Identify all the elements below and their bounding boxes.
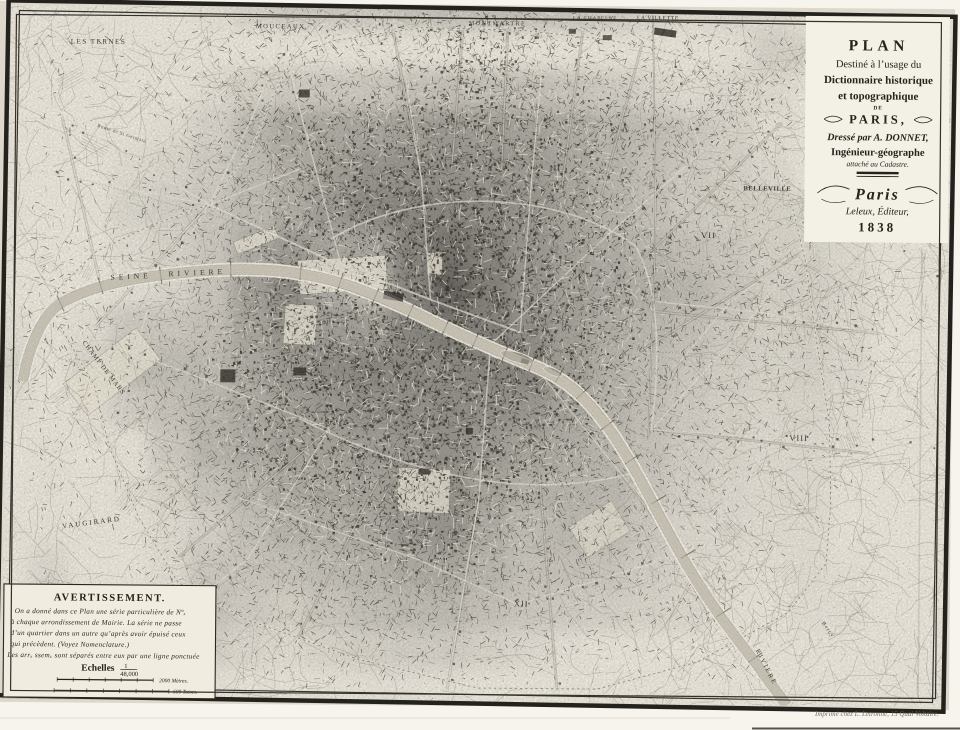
svg-text:III: III <box>550 163 562 173</box>
svg-text:XI: XI <box>397 491 408 501</box>
svg-text:1: 1 <box>124 663 127 670</box>
svg-text:DE: DE <box>873 105 883 111</box>
svg-text:Dressé par A. DONNET,: Dressé par A. DONNET, <box>826 132 928 144</box>
svg-text:MOUCEAUX: MOUCEAUX <box>256 23 306 30</box>
svg-text:Destiné à l’usage du: Destiné à l’usage du <box>836 59 922 71</box>
svg-text:qui précèdent. (Voyez Nomencla: qui précèdent. (Voyez Nomenclature.) <box>10 640 129 649</box>
svg-text:à chaque arrondissement de Mai: à chaque arrondissement de Mairie. La sé… <box>11 618 183 627</box>
svg-text:48,000: 48,000 <box>120 671 138 678</box>
svg-text:XII: XII <box>514 598 529 608</box>
svg-text:PARIS,: PARIS, <box>849 112 907 127</box>
svg-text:PLAN: PLAN <box>849 37 909 55</box>
svg-text:Paris: Paris <box>854 186 900 203</box>
svg-text:On a donné dans ce Plan une sé: On a donné dans ce Plan une série partic… <box>15 607 186 616</box>
svg-text:d’un quartier dans un autre qu: d’un quartier dans un autre qu’après avo… <box>11 629 187 639</box>
svg-text:LES TERNES: LES TERNES <box>71 37 127 45</box>
svg-text:2000 Mètres.: 2000 Mètres. <box>159 678 188 684</box>
svg-text:Dictionnaire historique: Dictionnaire historique <box>824 74 933 87</box>
svg-text:Ingénieur-géographe: Ingénieur-géographe <box>831 147 925 159</box>
svg-text:Les arrₓ ssemₓ sont séparés en: Les arrₓ ssemₓ sont séparés entre eux pa… <box>6 651 200 661</box>
svg-text:MONTMARTRE: MONTMARTRE <box>469 21 526 27</box>
svg-text:1838: 1838 <box>858 219 896 234</box>
svg-text:SEINE: SEINE <box>110 271 152 282</box>
svg-text:Leleux, Éditeur,: Leleux, Éditeur, <box>845 205 909 218</box>
svg-text:Echelles: Echelles <box>81 664 115 674</box>
svg-text:VIII: VIII <box>789 433 808 443</box>
svg-text:Imprimé chez L. Letronne, 15 Q: Imprimé chez L. Letronne, 15 Quai Voltai… <box>814 710 939 718</box>
svg-text:VII: VII <box>701 230 716 240</box>
svg-text:et topographique: et topographique <box>838 90 919 103</box>
svg-text:attaché au Cadastre.: attaché au Cadastre. <box>846 159 909 169</box>
svg-text:AVERTISSEMENT.: AVERTISSEMENT. <box>54 592 166 604</box>
svg-text:BELLEVILLE: BELLEVILLE <box>743 185 791 192</box>
